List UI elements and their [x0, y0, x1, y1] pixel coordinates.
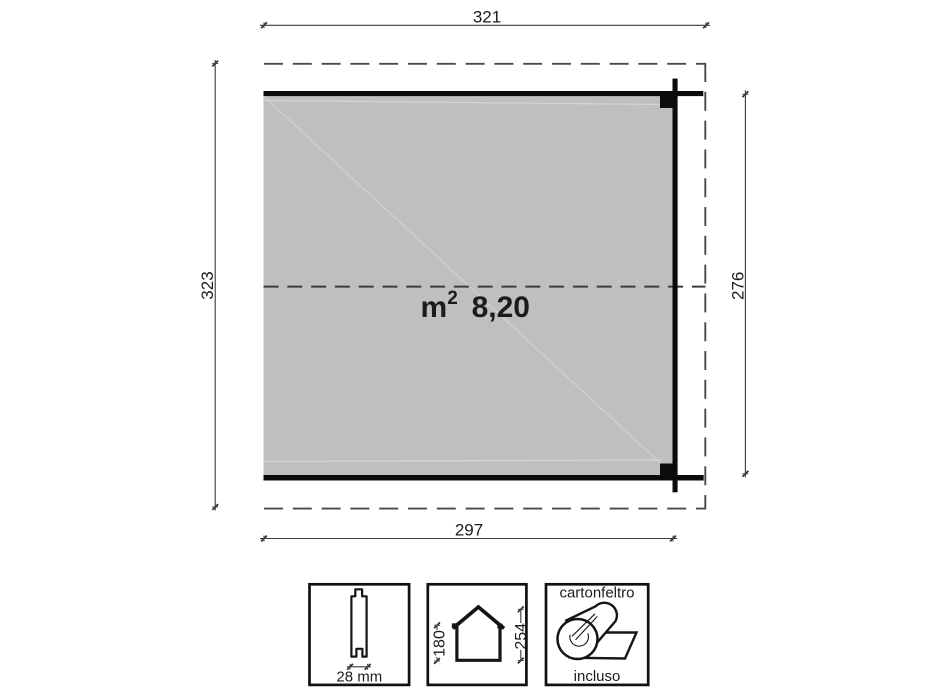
- svg-text:321: 321: [473, 7, 501, 26]
- svg-text:m2 8,20: m2 8,20: [421, 288, 531, 324]
- svg-text:276: 276: [728, 272, 747, 300]
- svg-text:297: 297: [455, 521, 483, 540]
- svg-text:28 mm: 28 mm: [336, 669, 382, 686]
- svg-text:323: 323: [198, 271, 217, 299]
- svg-text:254: 254: [513, 623, 530, 650]
- svg-text:180: 180: [431, 630, 448, 657]
- svg-text:cartonfeltro: cartonfeltro: [559, 585, 634, 602]
- svg-text:incluso: incluso: [574, 668, 621, 685]
